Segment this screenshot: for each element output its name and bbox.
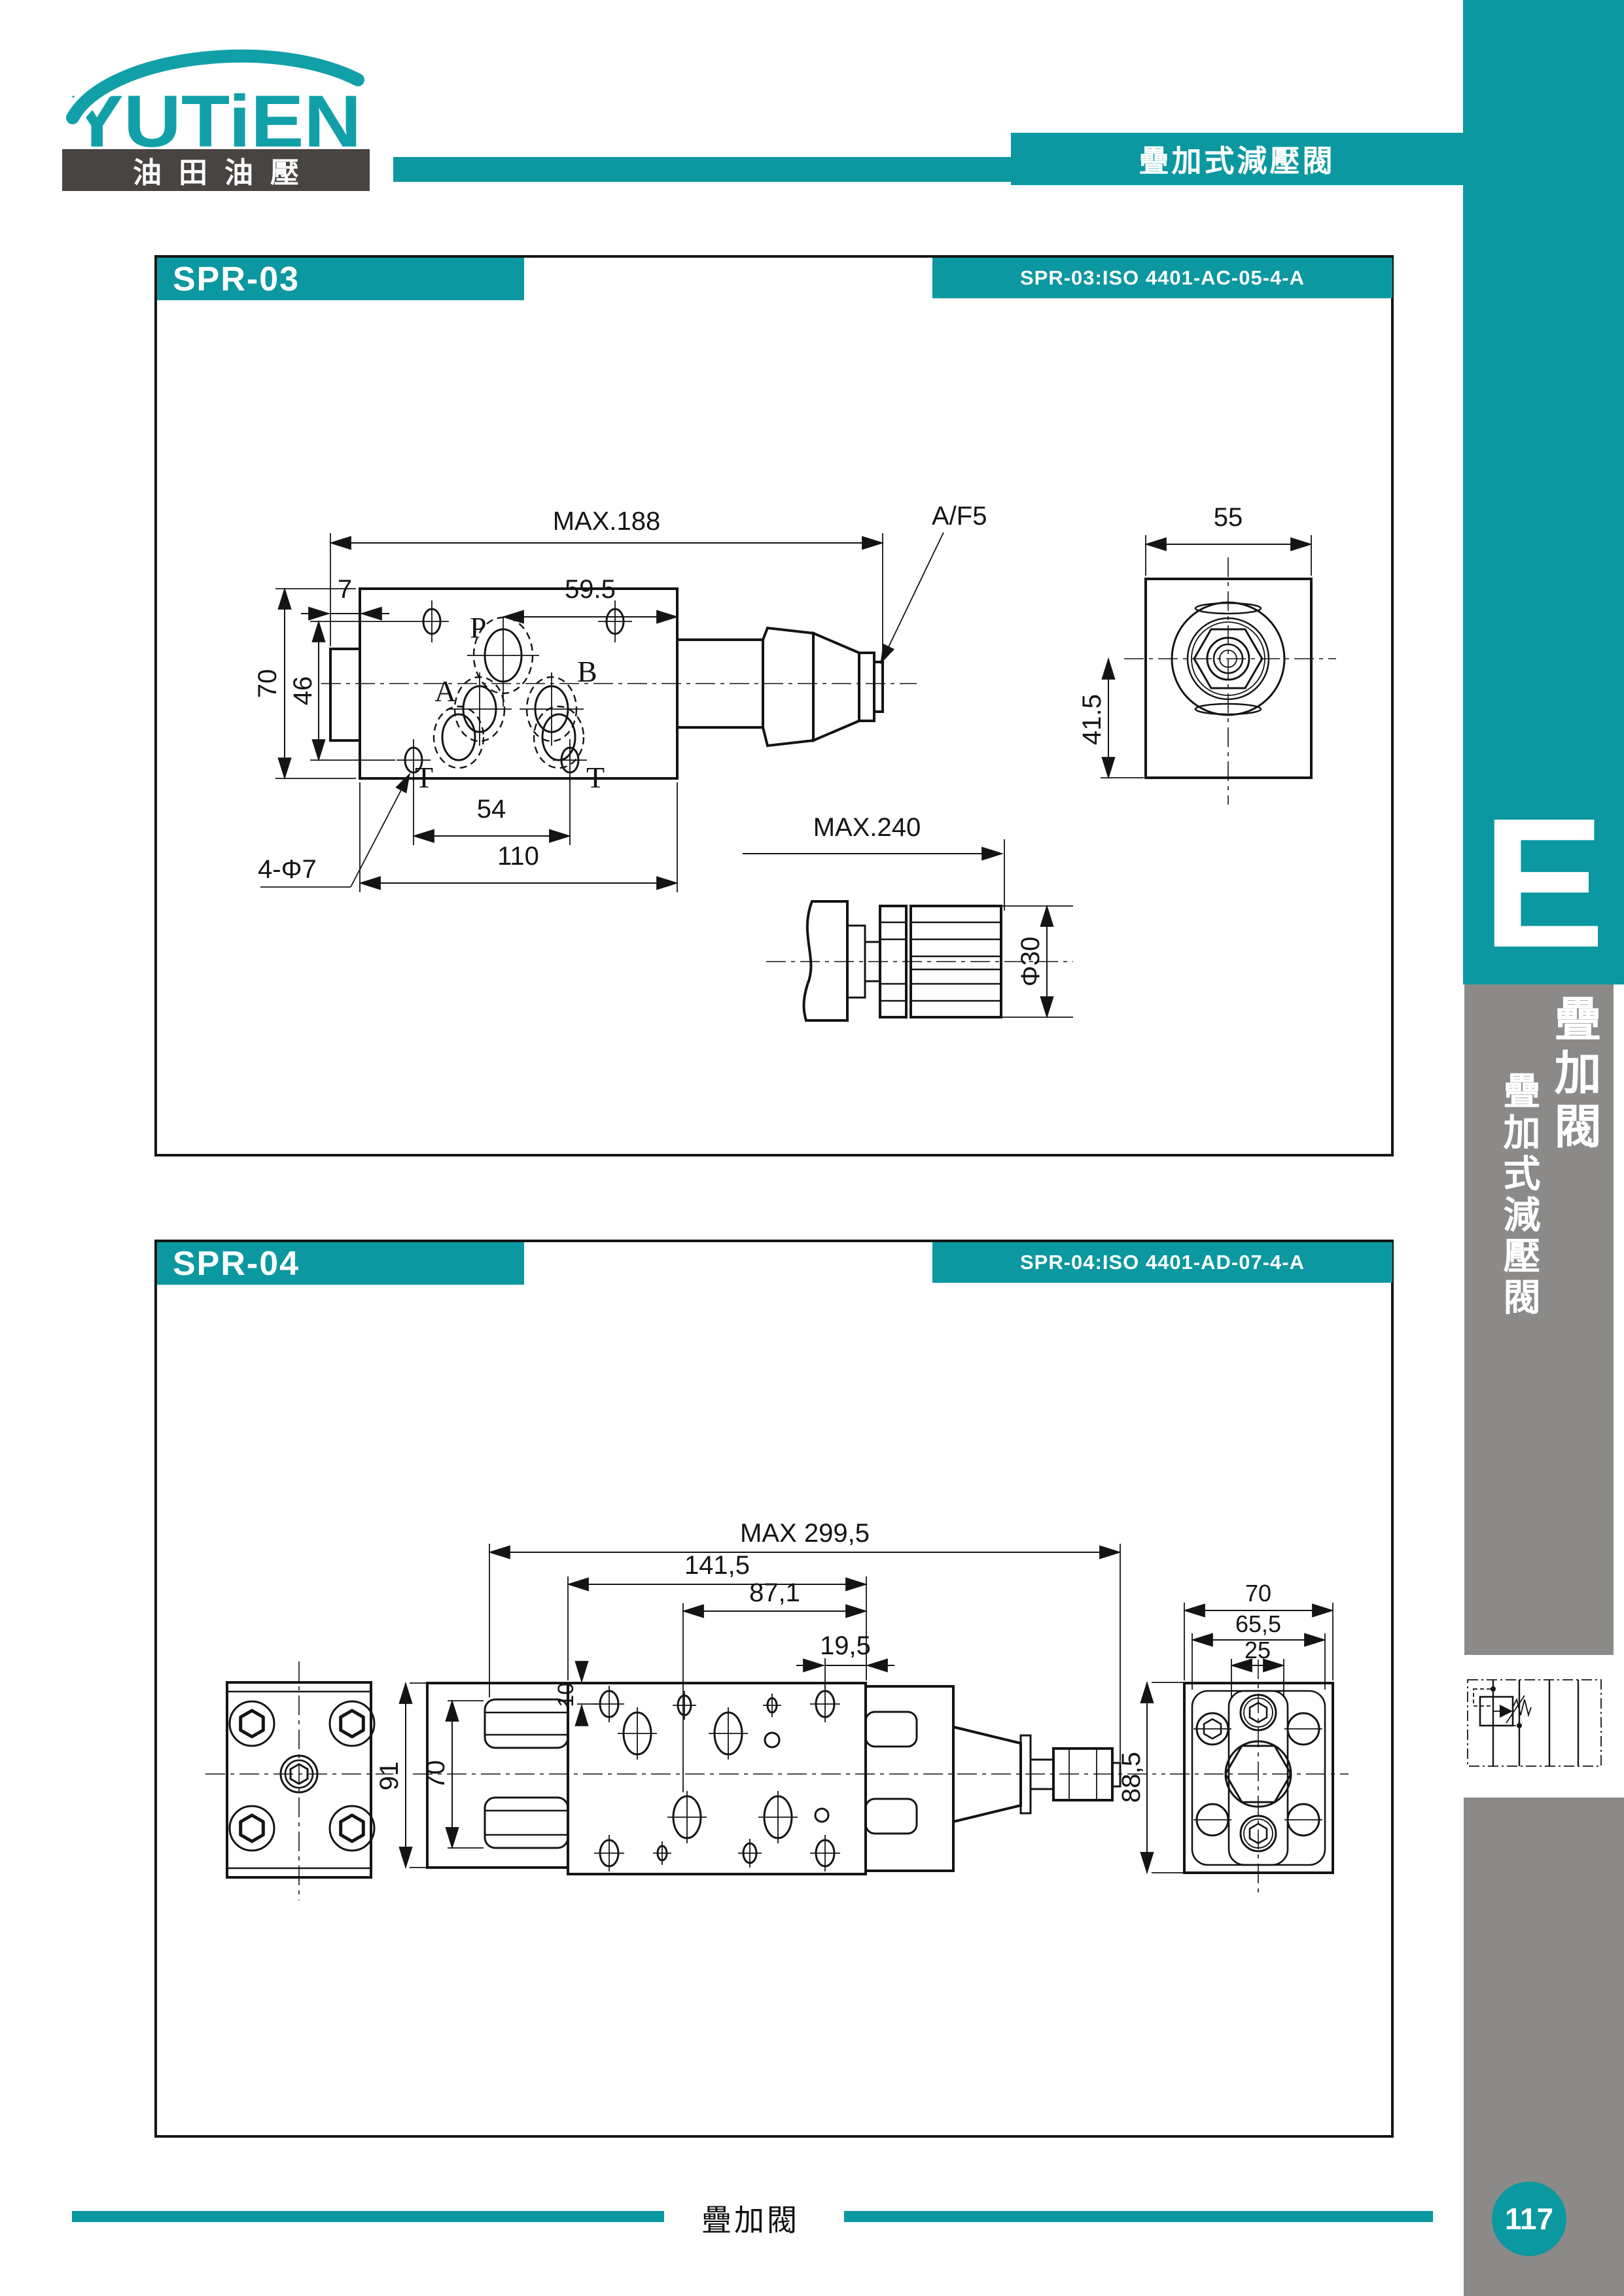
spr04-dim-plate-height: 70 <box>421 1760 450 1790</box>
header-banner: 疊加式減壓閥 <box>1011 133 1463 185</box>
spr04-dim-flange-height: 91 <box>375 1762 404 1791</box>
spr04-dim-side-height: 88,5 <box>1117 1752 1146 1803</box>
spr04-flange-bolts <box>230 1701 374 1851</box>
spr03-dim-width: 110 <box>497 842 539 871</box>
spr03-dim-overall: MAX.188 <box>553 507 661 536</box>
hydraulic-schematic-symbol <box>1464 1675 1604 1771</box>
page-number: 117 <box>1505 2201 1553 2236</box>
spr03-dim-side-width: 55 <box>1214 503 1243 532</box>
side-tab-large: 疊加閥 <box>1539 994 1608 1155</box>
spr03-port-b: B <box>577 655 597 688</box>
spr03-label-holes: 4-Φ7 <box>258 855 317 884</box>
spr04-dim-edge-offset: 19,5 <box>820 1631 871 1660</box>
section-index-letter: E <box>1463 785 1624 981</box>
footer-rule-left <box>72 2211 664 2222</box>
spr03-port-a: A <box>434 674 456 708</box>
spr04-dim-overall: MAX 299,5 <box>740 1519 870 1548</box>
spr04-flange-view <box>205 1661 393 1900</box>
spr04-dim-side-width-inner: 65,5 <box>1235 1610 1281 1637</box>
footer-rule-right <box>844 2211 1433 2222</box>
spr03-port-t-right: T <box>586 761 605 794</box>
spr04-ports <box>594 1686 840 1871</box>
spr03-dim-knob-length: MAX.240 <box>813 813 921 842</box>
side-tab-small: 疊加式減壓閥 <box>1492 1071 1545 1319</box>
spr03-dim-side-height: 41.5 <box>1078 694 1106 745</box>
spr03-ports <box>434 617 584 768</box>
spr04-dim-width: 141,5 <box>684 1551 750 1580</box>
spr03-dim-port-edge: 59.5 <box>565 575 616 604</box>
spr03-technical-drawing: P A B T T <box>154 255 1394 1157</box>
spr04-adjust-screw <box>866 1686 1120 1871</box>
spr04-technical-drawing: MAX 299,5 141,5 87,1 19,5 10 91 70 88,5 <box>154 1240 1394 2138</box>
spr03-dim-knob-dia: Φ30 <box>1016 937 1045 986</box>
spr04-dim-top-offset: 10 <box>554 1682 578 1707</box>
spr03-side-view <box>1101 535 1336 805</box>
spr03-dim-hole-v: 46 <box>289 676 317 706</box>
spr03-label-wrench: A/F5 <box>932 502 987 531</box>
brand-subtitle-bar: 油田油壓 <box>62 149 370 191</box>
brand-logo: YUTiEN <box>62 18 370 153</box>
spr03-knob-view <box>743 839 1073 1020</box>
spr04-dim-side-hole-spacing: 25 <box>1244 1637 1271 1663</box>
spr03-dim-tab: 7 <box>338 575 352 604</box>
brand-subtitle: 油田油壓 <box>116 149 316 191</box>
footer-label: 疊加閥 <box>662 2197 839 2240</box>
header-banner-label: 疊加式減壓閥 <box>1139 137 1335 181</box>
page-number-badge: 117 <box>1492 2182 1566 2256</box>
spr04-dim-port-span: 87,1 <box>749 1578 800 1607</box>
spr03-dim-hole-h: 54 <box>477 795 506 824</box>
spr04-dim-side-width: 70 <box>1245 1580 1271 1607</box>
catalog-page: YUTiEN 油田油壓 疊加式減壓閥 E 疊加閥 疊加式減壓閥 117 疊加閥 <box>0 0 1624 2296</box>
spr03-dim-height: 70 <box>253 669 282 699</box>
spr03-port-t-left: T <box>415 761 433 794</box>
spr03-front-view: P A B T T <box>253 502 1336 1020</box>
spr03-port-p: P <box>470 611 487 644</box>
